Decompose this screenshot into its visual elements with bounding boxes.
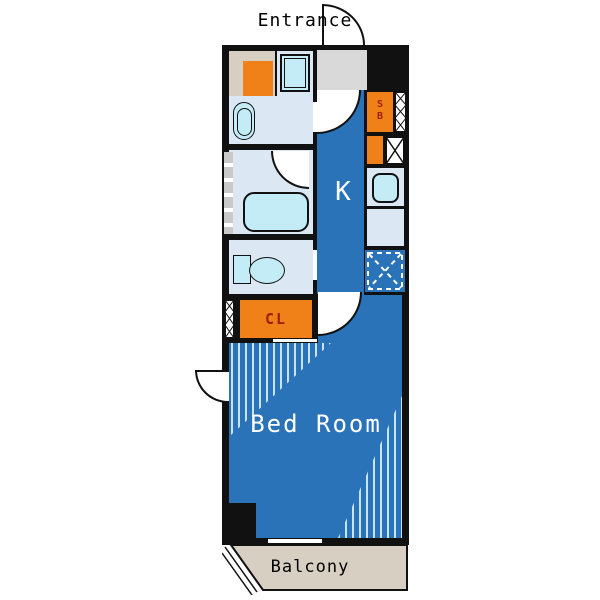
bedroom-label: Bed Room — [240, 410, 392, 438]
shoe-box-label-s: S — [367, 99, 393, 111]
shoe-box-label: S B — [367, 92, 393, 123]
shoe-box-label-b: B — [367, 111, 393, 123]
wash-basin-bowl — [237, 108, 252, 136]
pillar — [224, 503, 256, 538]
bathroom-window — [224, 152, 233, 234]
shoe-box-window — [395, 92, 406, 132]
toilet-bowl — [249, 257, 285, 284]
refrigerator-space — [365, 250, 405, 292]
closet-side-window — [225, 300, 234, 338]
floor-plan: K S B CL Bed Room — [0, 0, 600, 600]
entrance-label: Entrance — [235, 8, 375, 34]
utility-box — [367, 136, 383, 164]
closet-label: CL — [240, 300, 312, 338]
shoe-box: S B — [367, 92, 393, 132]
storage-box — [243, 61, 273, 96]
kitchen-label: K — [330, 176, 356, 208]
bathtub — [243, 192, 309, 232]
wash-basin — [233, 102, 255, 140]
meter-box — [385, 136, 405, 165]
closet-door-line — [273, 339, 317, 342]
balcony-label: Balcony — [240, 556, 380, 578]
side-door-arc — [195, 370, 228, 403]
closet: CL — [240, 300, 312, 338]
kitchen-sink — [372, 173, 399, 203]
washing-machine — [280, 54, 310, 92]
washing-machine-inner — [284, 58, 306, 88]
entrance-area — [317, 50, 367, 90]
counter-divider — [367, 206, 404, 209]
